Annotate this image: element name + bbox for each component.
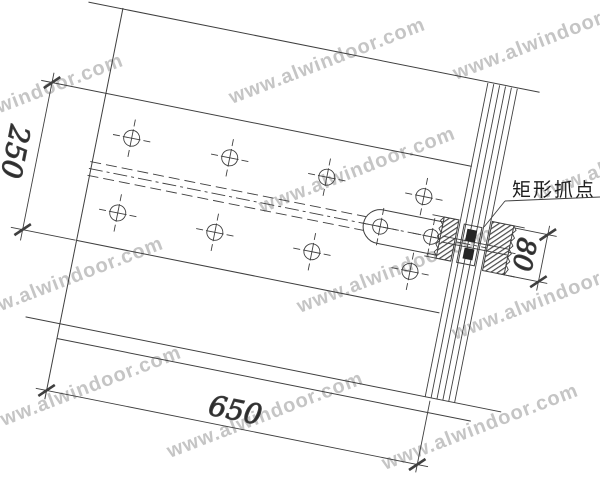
dimension-250-text: 250 — [0, 121, 37, 181]
bolt-hole — [402, 174, 447, 219]
detail-drawing-canvas: www.alwindoor.com www.alwindoor.com www.… — [0, 0, 600, 477]
watermark-text: www.alwindoor.com — [0, 341, 184, 437]
watermark-text: www.alwindoor.com — [449, 0, 600, 85]
clamp-stub-line — [433, 215, 445, 217]
watermark-text: www.alwindoor.com — [0, 232, 166, 328]
bolt-hole — [95, 191, 140, 236]
dimension-tick — [14, 221, 30, 237]
bolt-hole — [207, 135, 252, 180]
bolt-hole — [109, 116, 154, 161]
detail-drawing-page: www.alwindoor.com www.alwindoor.com www.… — [0, 0, 600, 477]
slot-hole — [358, 204, 403, 249]
clamp-bolt-section — [463, 248, 475, 261]
dimension-80-text: 80 — [506, 235, 542, 273]
glass-edge-line-bottom — [26, 317, 502, 412]
clamp-stub-line — [514, 226, 525, 228]
bolt-hole — [290, 229, 335, 274]
dimension-650: 650 — [34, 325, 441, 475]
bolt-hole — [192, 210, 237, 255]
glass-edge-line-top — [88, 2, 539, 92]
watermark-text: www.alwindoor.com — [225, 13, 428, 109]
